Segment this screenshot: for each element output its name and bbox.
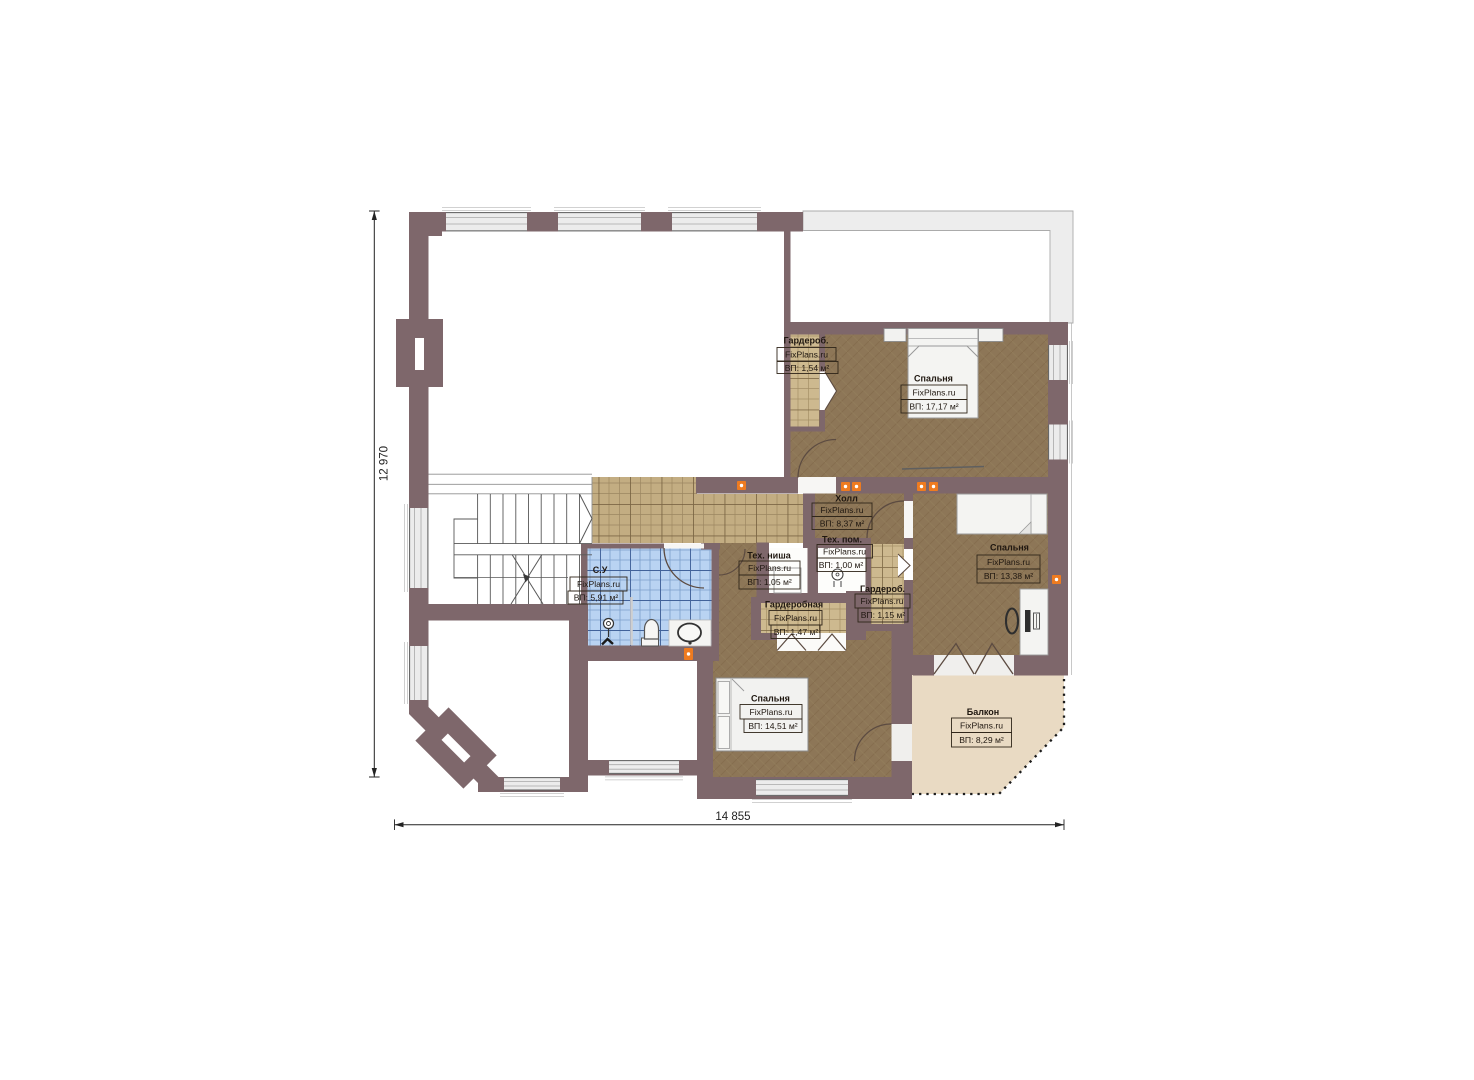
svg-text:ВП: 1,00 м²: ВП: 1,00 м² <box>819 560 864 570</box>
svg-text:FixPlans.ru: FixPlans.ru <box>987 557 1030 567</box>
svg-text:Балкон: Балкон <box>967 707 1000 717</box>
svg-text:Спальня: Спальня <box>914 374 953 384</box>
svg-text:ВП: 14,51 м²: ВП: 14,51 м² <box>748 721 797 731</box>
svg-text:Спальня: Спальня <box>990 543 1029 553</box>
svg-text:FixPlans.ru: FixPlans.ru <box>785 350 828 360</box>
svg-text:Гардероб.: Гардероб. <box>783 336 828 346</box>
svg-text:С.У: С.У <box>593 565 608 575</box>
svg-text:ВП: 1,47 м²: ВП: 1,47 м² <box>774 627 819 637</box>
svg-text:ВП: 1,54 м²: ВП: 1,54 м² <box>785 363 830 373</box>
svg-text:Гардеробная: Гардеробная <box>765 600 823 610</box>
svg-text:Гардероб.: Гардероб. <box>860 584 905 594</box>
svg-text:Тех. ниша: Тех. ниша <box>747 551 791 561</box>
svg-text:Тех. пом.: Тех. пом. <box>822 535 862 545</box>
svg-text:ВП: 13,38 м²: ВП: 13,38 м² <box>984 571 1033 581</box>
svg-text:ВП: 5,91 м²: ВП: 5,91 м² <box>574 593 619 603</box>
svg-text:FixPlans.ru: FixPlans.ru <box>861 596 904 606</box>
svg-text:ВП: 1,15 м²: ВП: 1,15 м² <box>861 610 906 620</box>
svg-text:FixPlans.ru: FixPlans.ru <box>821 505 864 515</box>
svg-text:Спальня: Спальня <box>751 694 790 704</box>
svg-text:FixPlans.ru: FixPlans.ru <box>748 563 791 573</box>
svg-text:FixPlans.ru: FixPlans.ru <box>913 388 956 398</box>
svg-text:ВП: 1,05 м²: ВП: 1,05 м² <box>747 577 792 587</box>
svg-text:FixPlans.ru: FixPlans.ru <box>823 547 866 557</box>
svg-text:12 970: 12 970 <box>379 446 391 481</box>
svg-text:ВП: 8,37 м²: ВП: 8,37 м² <box>820 518 865 528</box>
svg-text:Холл: Холл <box>835 494 858 504</box>
svg-text:14 855: 14 855 <box>715 811 750 823</box>
svg-text:FixPlans.ru: FixPlans.ru <box>750 707 793 717</box>
svg-text:ВП: 17,17 м²: ВП: 17,17 м² <box>909 402 958 412</box>
svg-text:FixPlans.ru: FixPlans.ru <box>960 720 1003 730</box>
svg-text:FixPlans.ru: FixPlans.ru <box>774 613 817 623</box>
svg-text:FixPlans.ru: FixPlans.ru <box>577 579 620 589</box>
svg-text:ВП: 8,29 м²: ВП: 8,29 м² <box>959 735 1004 745</box>
